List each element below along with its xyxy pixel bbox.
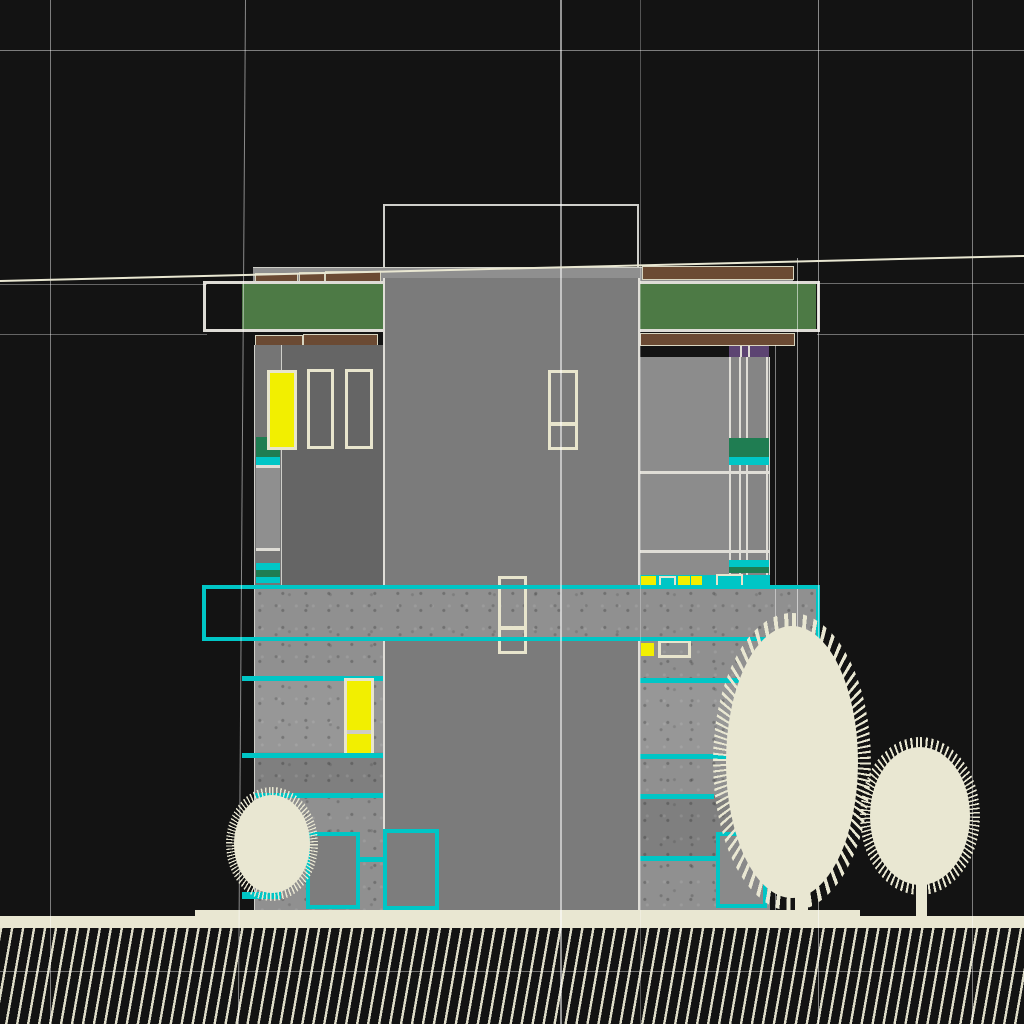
tree-crown (234, 795, 310, 893)
subcolumn-mullion (766, 357, 768, 575)
subcolumn-mullion (729, 357, 731, 575)
left-column-cyan-strip[interactable] (256, 563, 280, 570)
viewport (0, 0, 1024, 1024)
left-column-white-line (256, 548, 280, 551)
subcolumn-mullion (746, 357, 748, 575)
right-green-strip[interactable] (729, 567, 769, 574)
lower-fascia-segment[interactable] (640, 333, 795, 346)
balcony-edge-line[interactable] (640, 794, 714, 799)
window-lit-yellow-lower[interactable] (344, 678, 374, 756)
left-column-cyan-strip[interactable] (256, 577, 280, 583)
window-lit-yellow[interactable] (267, 370, 297, 450)
small-window-frame[interactable] (658, 640, 691, 658)
guide-line-horizontal[interactable] (0, 971, 1024, 972)
window-frame[interactable] (345, 369, 373, 449)
tree-crown (870, 747, 970, 885)
left-column-cyan-strip[interactable] (256, 457, 280, 465)
ground-line-band[interactable] (0, 916, 1024, 928)
window-mullion (551, 422, 575, 426)
tree-right[interactable] (860, 737, 980, 895)
guide-line-vertical[interactable] (560, 0, 562, 1024)
left-column-light-panel (256, 468, 280, 548)
guide-line-horizontal[interactable] (817, 283, 1024, 284)
guide-line-horizontal[interactable] (0, 334, 207, 335)
window-frame[interactable] (307, 369, 334, 449)
tree-trunk (916, 880, 927, 922)
subcolumn-mullion (739, 357, 741, 575)
tree-large-center[interactable] (713, 613, 871, 911)
right-green-panel[interactable] (729, 438, 769, 457)
guide-line-horizontal[interactable] (0, 284, 207, 285)
right-wall-floor-line (640, 471, 769, 474)
guide-line-horizontal[interactable] (0, 50, 1024, 52)
right-wall-subcolumn[interactable] (729, 357, 769, 575)
guide-line-vertical[interactable] (640, 0, 641, 1024)
tree-trunk (795, 893, 808, 923)
balcony-edge-line[interactable] (640, 856, 717, 861)
tree-small-left[interactable] (226, 787, 318, 901)
left-column-green-strip[interactable] (256, 570, 280, 577)
window-mullion (347, 730, 371, 734)
right-cyan-strip[interactable] (729, 457, 769, 465)
guide-line-vertical[interactable] (50, 0, 52, 1024)
small-window-yellow[interactable] (641, 643, 654, 656)
purple-strip-divider (740, 346, 742, 357)
guide-line-horizontal[interactable] (817, 334, 1024, 335)
fascia-segment[interactable] (642, 266, 794, 280)
tree-crown (726, 626, 858, 898)
right-wall-floor-line (640, 550, 769, 553)
ground-section-hatch[interactable] (0, 928, 1024, 1024)
tower-window-upper[interactable] (548, 370, 578, 450)
purple-strip-divider (748, 346, 750, 357)
selected-window[interactable] (383, 829, 439, 910)
